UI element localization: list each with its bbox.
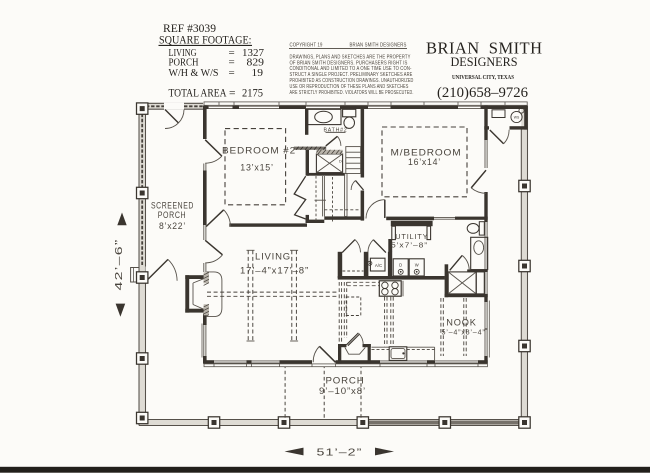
svg-text:9’–10”x8’: 9’–10”x8’: [319, 386, 366, 396]
svg-text:17’–4”x17’–8”: 17’–4”x17’–8”: [240, 265, 309, 275]
svg-text:BEDROOM #2: BEDROOM #2: [222, 145, 296, 156]
svg-text:=: =: [229, 67, 235, 79]
svg-text:5’x7’–8”: 5’x7’–8”: [391, 241, 428, 250]
svg-text:WS: WS: [514, 115, 520, 119]
svg-text:D: D: [339, 159, 342, 163]
svg-text:(210)658–9726: (210)658–9726: [437, 85, 528, 101]
svg-text:BRIAN SMITH DESIGNERS: BRIAN SMITH DESIGNERS: [350, 43, 407, 49]
svg-text:51’–2”: 51’–2”: [317, 447, 363, 459]
svg-text:REF #3039: REF #3039: [163, 23, 216, 35]
svg-text:=: =: [229, 88, 236, 100]
svg-text:13’x15’: 13’x15’: [240, 163, 274, 173]
svg-text:SQUARE FOOTAGE:: SQUARE FOOTAGE:: [159, 35, 252, 47]
svg-text:D: D: [399, 262, 402, 267]
svg-text:W: W: [415, 262, 419, 267]
svg-text:PORCH: PORCH: [158, 210, 187, 220]
svg-text:SCREENED: SCREENED: [151, 201, 194, 211]
svg-text:2175: 2175: [242, 88, 263, 100]
svg-text:5’–4”x8’–4”: 5’–4”x8’–4”: [442, 328, 486, 337]
svg-text:TOTAL AREA: TOTAL AREA: [169, 88, 228, 100]
svg-text:NOOK: NOOK: [446, 318, 477, 328]
svg-text:PORCH: PORCH: [326, 375, 365, 386]
svg-text:COPYRIGHT 19: COPYRIGHT 19: [290, 43, 323, 49]
svg-text:UTILITY: UTILITY: [395, 232, 428, 241]
svg-text:UNIVERSAL CITY, TEXAS: UNIVERSAL CITY, TEXAS: [452, 74, 514, 81]
svg-text:ARE STRICTLY PROHIBITED. VIOL: ARE STRICTLY PROHIBITED. VIOLATORS WILL …: [290, 90, 414, 96]
svg-text:DESIGNERS: DESIGNERS: [451, 55, 518, 69]
svg-text:8’x22’: 8’x22’: [159, 221, 186, 231]
svg-text:W/H & W/S: W/H & W/S: [169, 67, 219, 79]
svg-text:19: 19: [252, 67, 264, 79]
svg-text:42’–6”: 42’–6”: [114, 239, 125, 291]
svg-text:LIVING: LIVING: [255, 251, 291, 262]
svg-text:A/C: A/C: [375, 263, 382, 268]
svg-text:16’x14’: 16’x14’: [408, 157, 441, 167]
